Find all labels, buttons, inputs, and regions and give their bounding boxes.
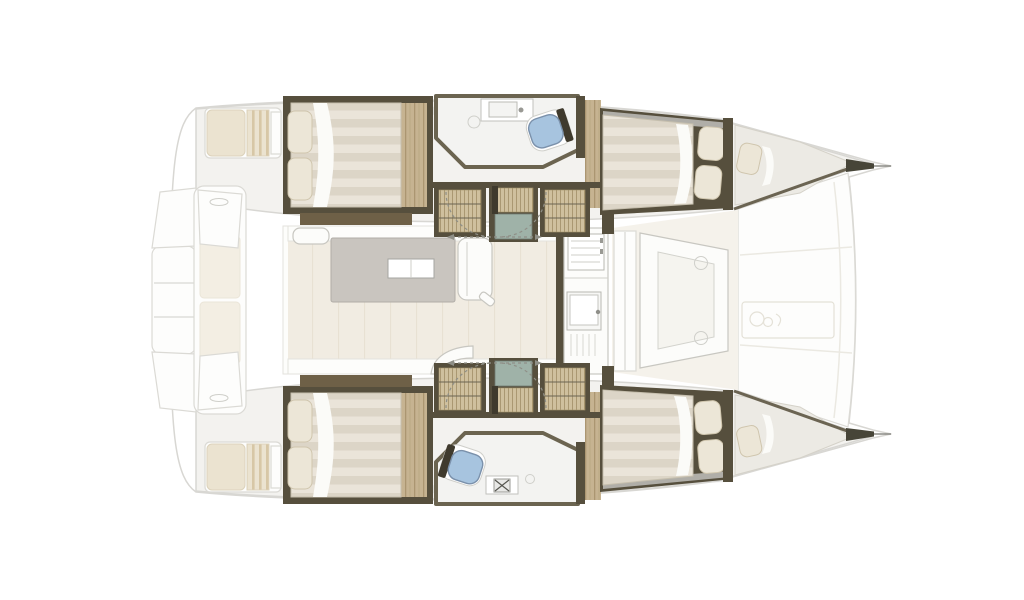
- stair-treads: [494, 388, 533, 412]
- cabin-wood-floor: [399, 393, 427, 497]
- foredeck-panel: [738, 173, 856, 427]
- steps-treads: [545, 368, 585, 410]
- pillow: [288, 400, 312, 442]
- seat-cushion-striped: [247, 110, 269, 156]
- transom-wing-bottom: [152, 352, 196, 412]
- pillow: [697, 439, 726, 474]
- starboard-aft-cabin: [283, 375, 433, 504]
- forward-cockpit: [612, 210, 738, 390]
- seat-armrest: [271, 446, 281, 488]
- stair-treads: [494, 188, 533, 212]
- bathroom-sink-icon: [481, 99, 533, 121]
- cabin-wood-floor: [399, 103, 427, 207]
- pillow: [697, 126, 726, 161]
- floorplan-canvas: [0, 0, 1024, 600]
- bed-base-step: [300, 213, 412, 225]
- pillow: [694, 400, 723, 435]
- saloon: [283, 226, 556, 374]
- galley-wall: [556, 226, 564, 374]
- steps-treads: [545, 190, 585, 232]
- door-leaf: [492, 186, 498, 214]
- head-wall: [576, 442, 585, 504]
- pillow: [694, 165, 723, 200]
- galley-sink-icon: [567, 292, 601, 330]
- saloon-side-seat: [293, 228, 329, 244]
- bathroom-sink-icon: [486, 476, 518, 494]
- steps-treads: [439, 190, 481, 232]
- steps-treads: [439, 368, 481, 410]
- seat-cushion-striped: [247, 444, 269, 490]
- head-wall: [576, 96, 585, 158]
- transom-steps: [152, 246, 196, 354]
- cockpit-seat-bottom: [205, 442, 281, 492]
- bow-bulkhead: [723, 118, 733, 210]
- port-aft-cabin: [283, 96, 433, 225]
- stove-icon: [568, 234, 604, 270]
- seat-cushion: [207, 444, 245, 490]
- transom-wing-top: [152, 188, 196, 248]
- chaise-lounge: [458, 238, 496, 307]
- seat-armrest: [271, 112, 281, 154]
- stair-landing: [495, 361, 532, 386]
- pillow: [288, 447, 312, 489]
- stair-landing: [495, 214, 532, 239]
- pillow: [288, 158, 312, 200]
- pillow: [288, 111, 312, 153]
- bow-bulkhead: [723, 390, 733, 482]
- door-leaf: [492, 386, 498, 414]
- seat-cushion: [207, 110, 245, 156]
- starboard-companionway: [433, 358, 609, 418]
- bed-base-step: [300, 375, 412, 387]
- forward-cockpit-seat-inner: [658, 252, 714, 349]
- foredeck: [738, 173, 856, 427]
- port-companionway: [433, 182, 609, 242]
- cockpit-seat-top: [205, 108, 281, 158]
- catamaran-floorplan: [0, 0, 1024, 600]
